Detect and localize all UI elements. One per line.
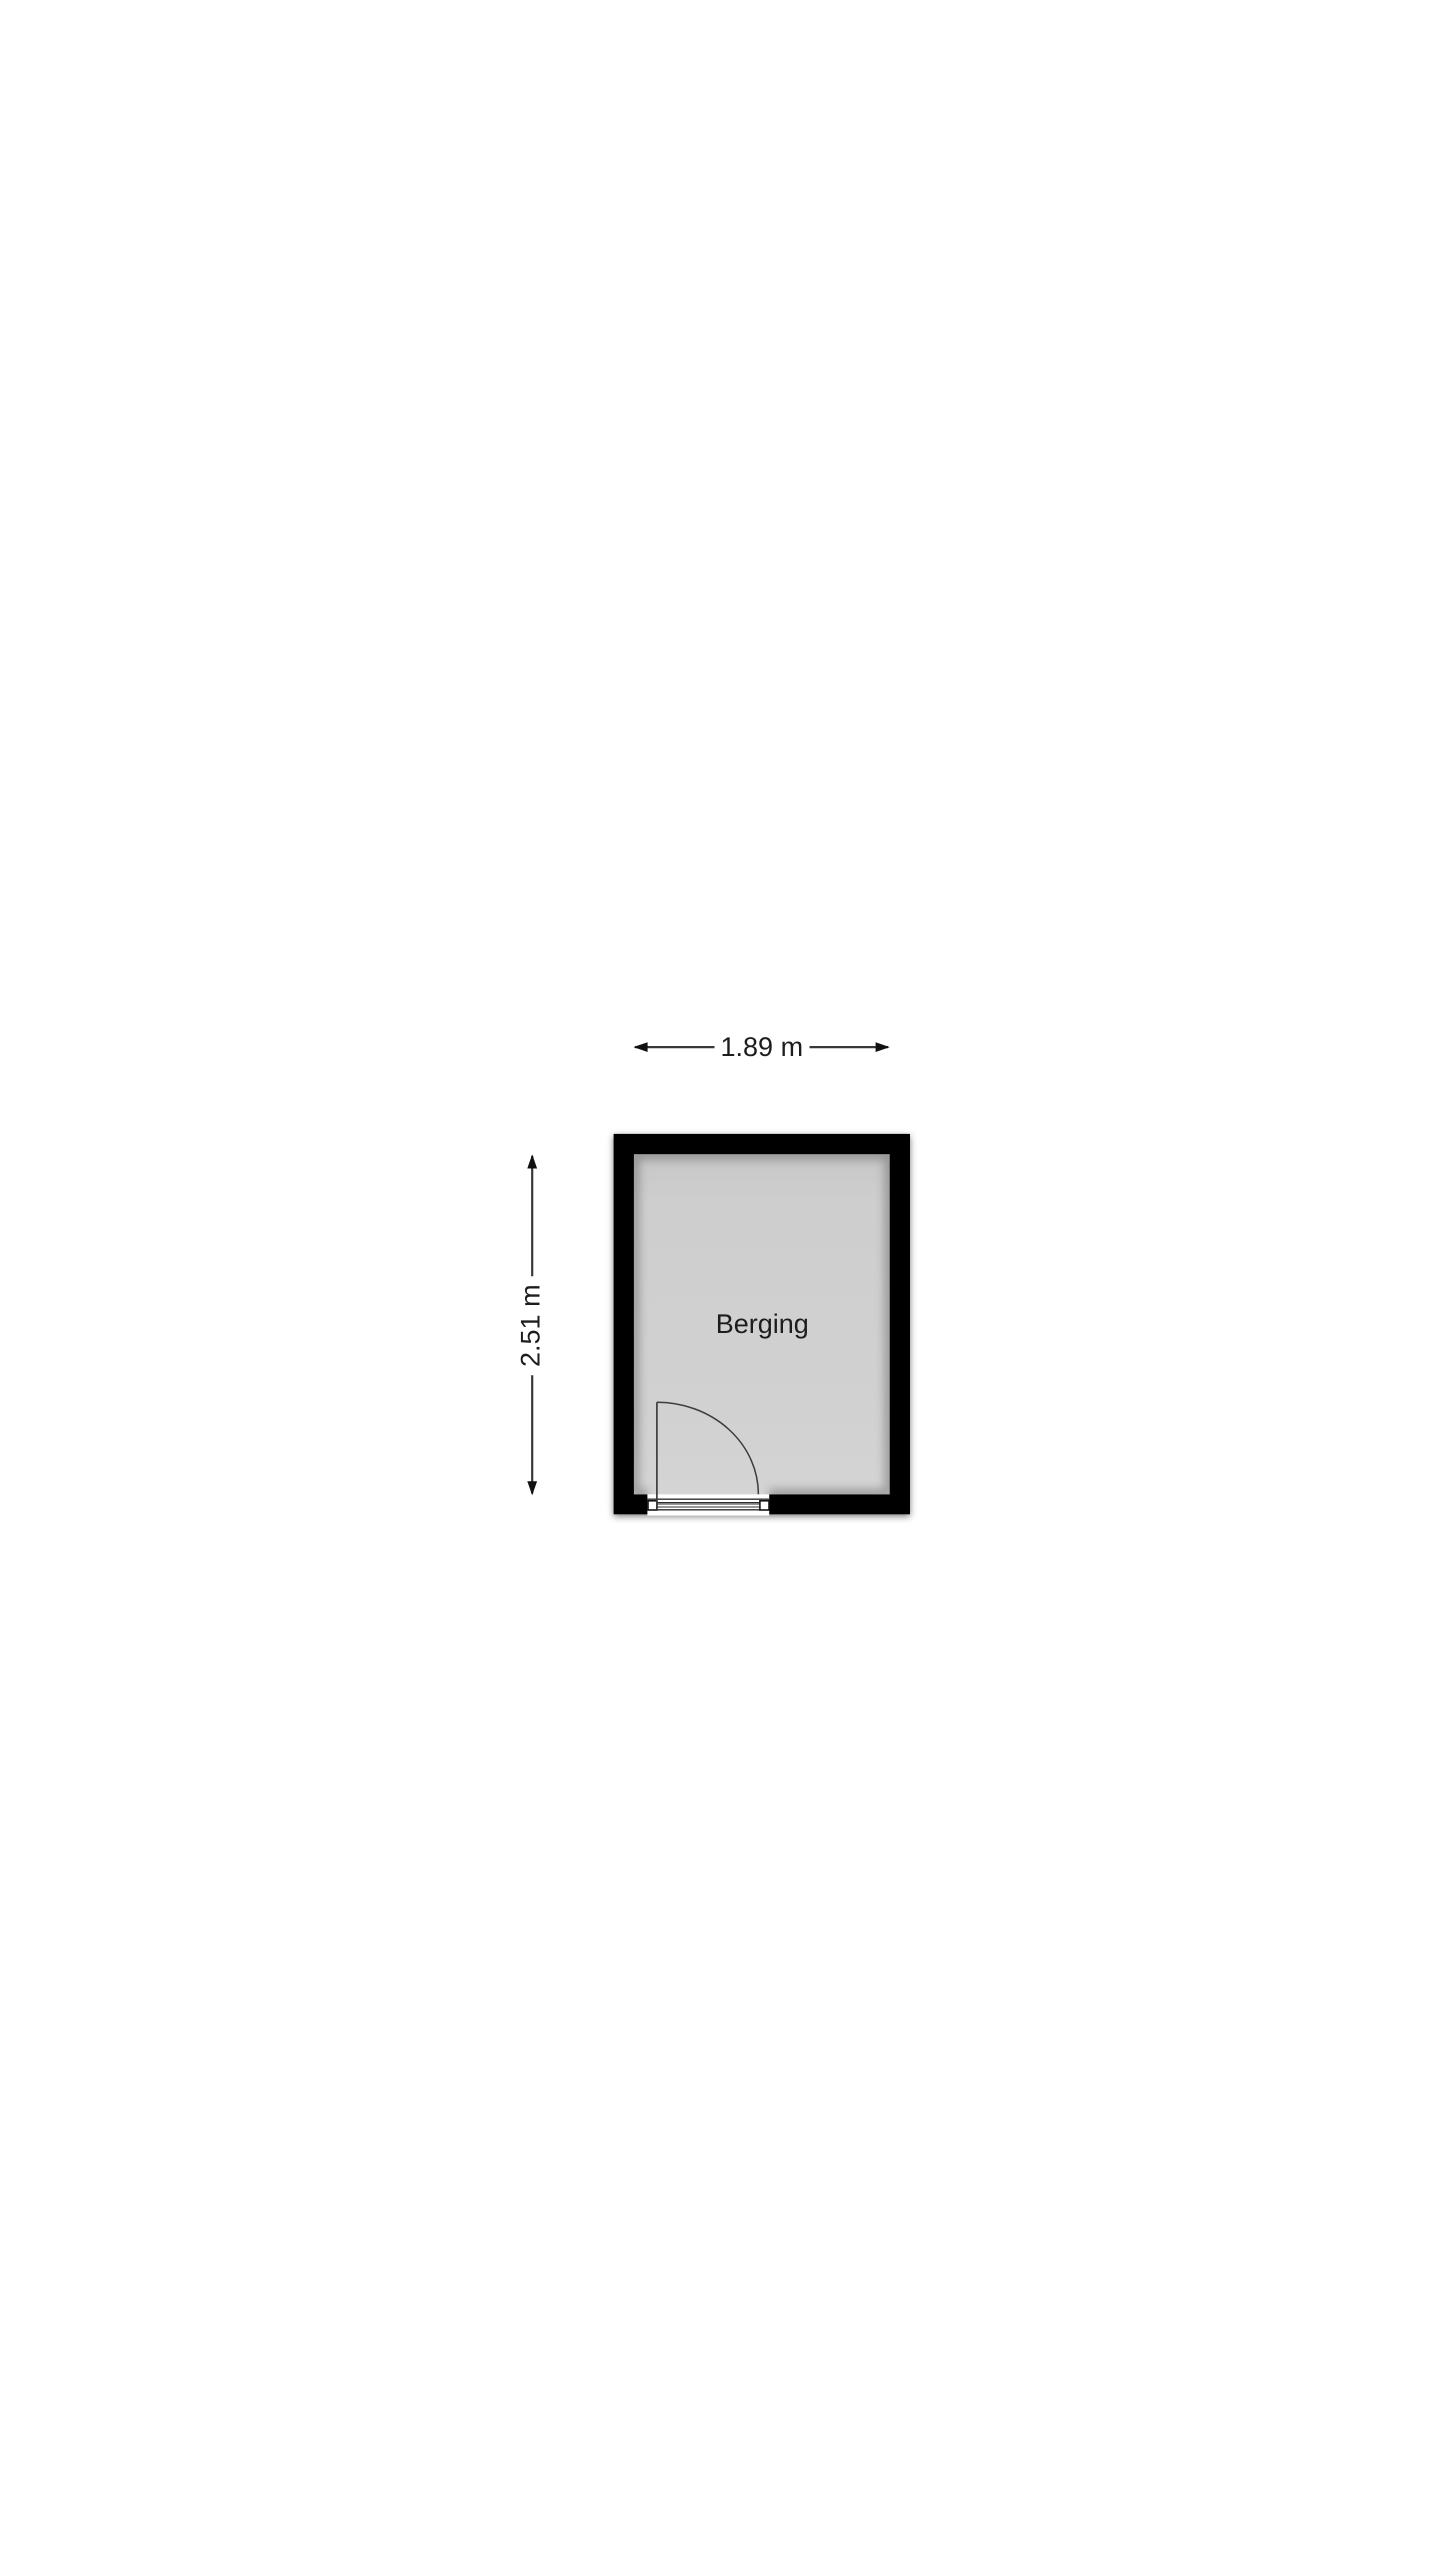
svg-text:2.51 m: 2.51 m	[515, 1284, 545, 1367]
svg-text:1.89 m: 1.89 m	[721, 1032, 804, 1062]
svg-text:Berging: Berging	[716, 1309, 809, 1339]
